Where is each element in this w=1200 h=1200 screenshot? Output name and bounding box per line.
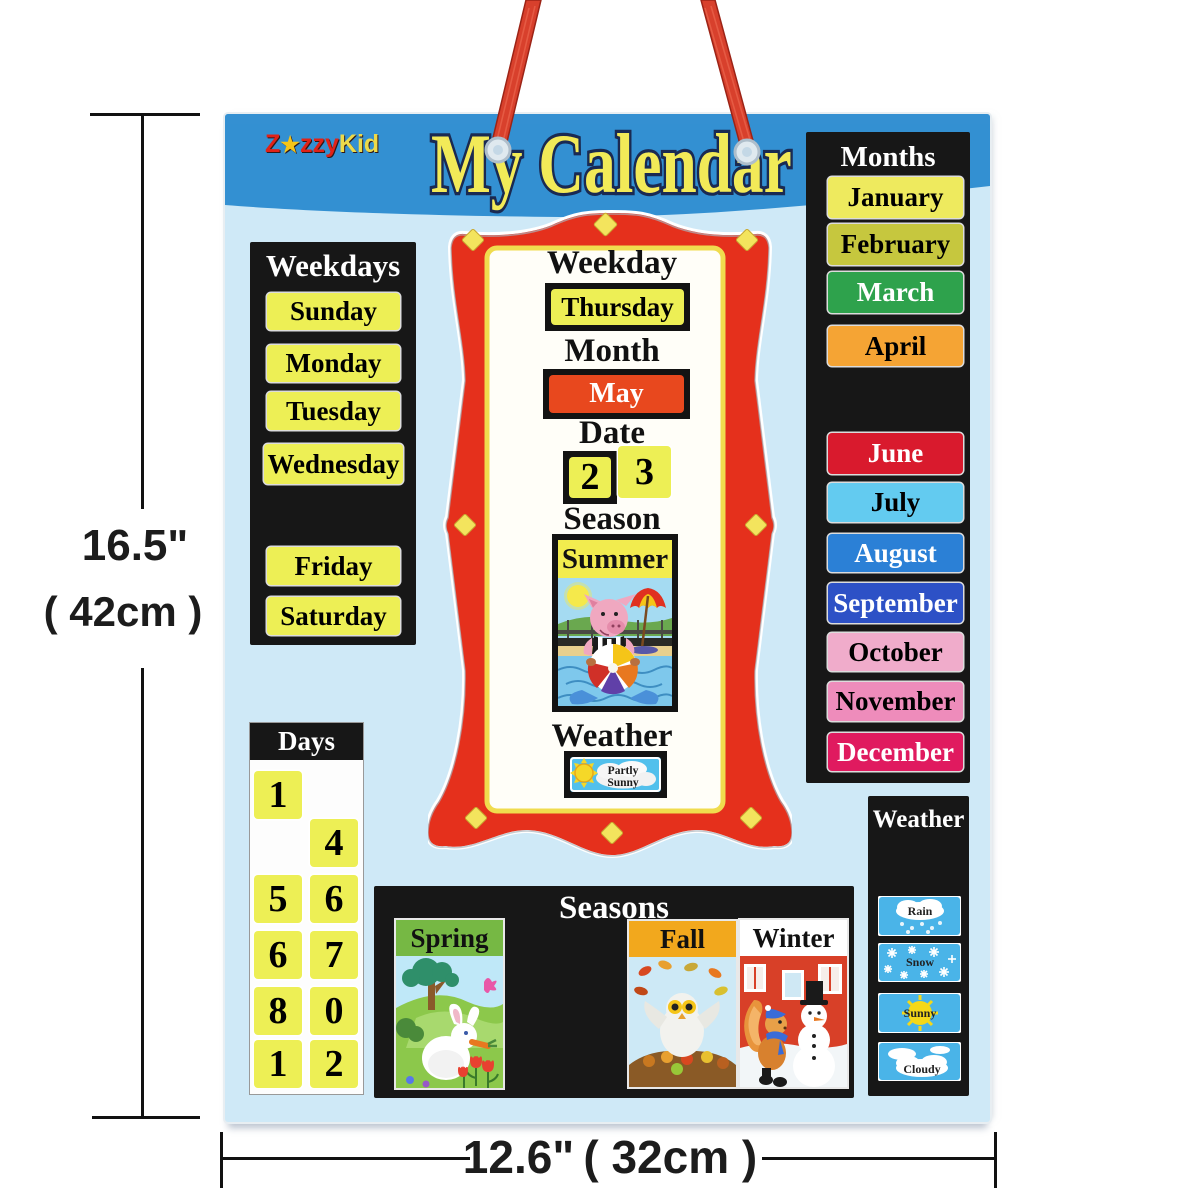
svg-text:Sunny: Sunny <box>904 1006 937 1020</box>
svg-text:Rain: Rain <box>908 904 933 918</box>
svg-text:Cloudy: Cloudy <box>903 1062 940 1076</box>
svg-text:Snow: Snow <box>906 955 934 969</box>
svg-text:Sunny: Sunny <box>607 777 639 789</box>
svg-text:Partly: Partly <box>608 765 639 777</box>
